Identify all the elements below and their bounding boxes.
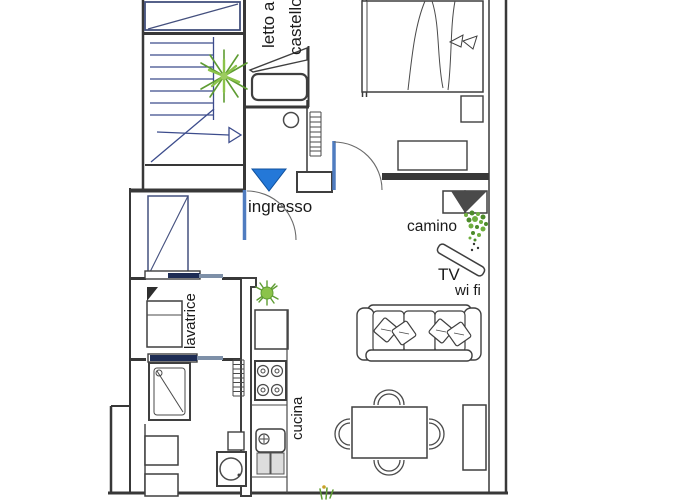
washing-machine-label: lavatrice (182, 293, 199, 349)
floor-plan-drawing: letto a castello ingresso (0, 0, 700, 500)
shower (149, 363, 190, 420)
bathroom-fixture (145, 474, 178, 496)
fireplace (443, 191, 487, 213)
closet-top-left (145, 2, 240, 30)
living-room-door (334, 141, 382, 190)
bunk-bed-room: letto a castello (250, 0, 307, 100)
living-room: camino TV wi fi (320, 191, 488, 499)
kitchen-label: cucina (289, 396, 306, 440)
fireplace-plant-icon (464, 211, 488, 252)
small-cabinet (228, 432, 244, 450)
kitchen-plant-icon (256, 281, 278, 305)
stove (255, 361, 286, 400)
bathroom-fixture (145, 436, 178, 465)
wall-pier (297, 172, 332, 192)
sideboard-cabinet (463, 405, 486, 470)
corner-marker (147, 287, 158, 301)
entrance-arrow-icon (252, 169, 286, 191)
wardrobe (148, 196, 188, 276)
laundry-cabinet (147, 301, 182, 347)
kitchen: cucina (251, 281, 306, 493)
round-fixture (284, 113, 299, 128)
fireplace-label: camino (407, 218, 457, 235)
staircase (150, 37, 247, 162)
kitchen-sink (256, 429, 285, 474)
bunk-bed-label-line1: letto a (259, 1, 278, 48)
sliding-door-lower (148, 354, 223, 362)
double-bed (362, 1, 483, 92)
bunk-bed (252, 74, 307, 100)
sliding-door-upper (145, 271, 223, 279)
stair-direction-arrow-icon (229, 128, 241, 143)
wifi-label: wi fi (454, 282, 481, 299)
dining-set (335, 390, 486, 475)
bedroom (362, 1, 483, 170)
stair-plant-icon (201, 50, 247, 102)
washing-machine (217, 452, 246, 486)
sofa (357, 305, 481, 361)
bunk-bed-label-line2: castello (286, 0, 305, 55)
radiator-hall (310, 112, 321, 156)
kitchen-counter-section (255, 310, 288, 349)
dining-table (352, 407, 427, 458)
entrance-label: ingresso (248, 197, 312, 216)
left-rooms: lavatrice (145, 196, 246, 496)
dresser (398, 141, 467, 170)
floor-plan: letto a castello ingresso (0, 0, 700, 500)
nightstand (461, 96, 483, 122)
